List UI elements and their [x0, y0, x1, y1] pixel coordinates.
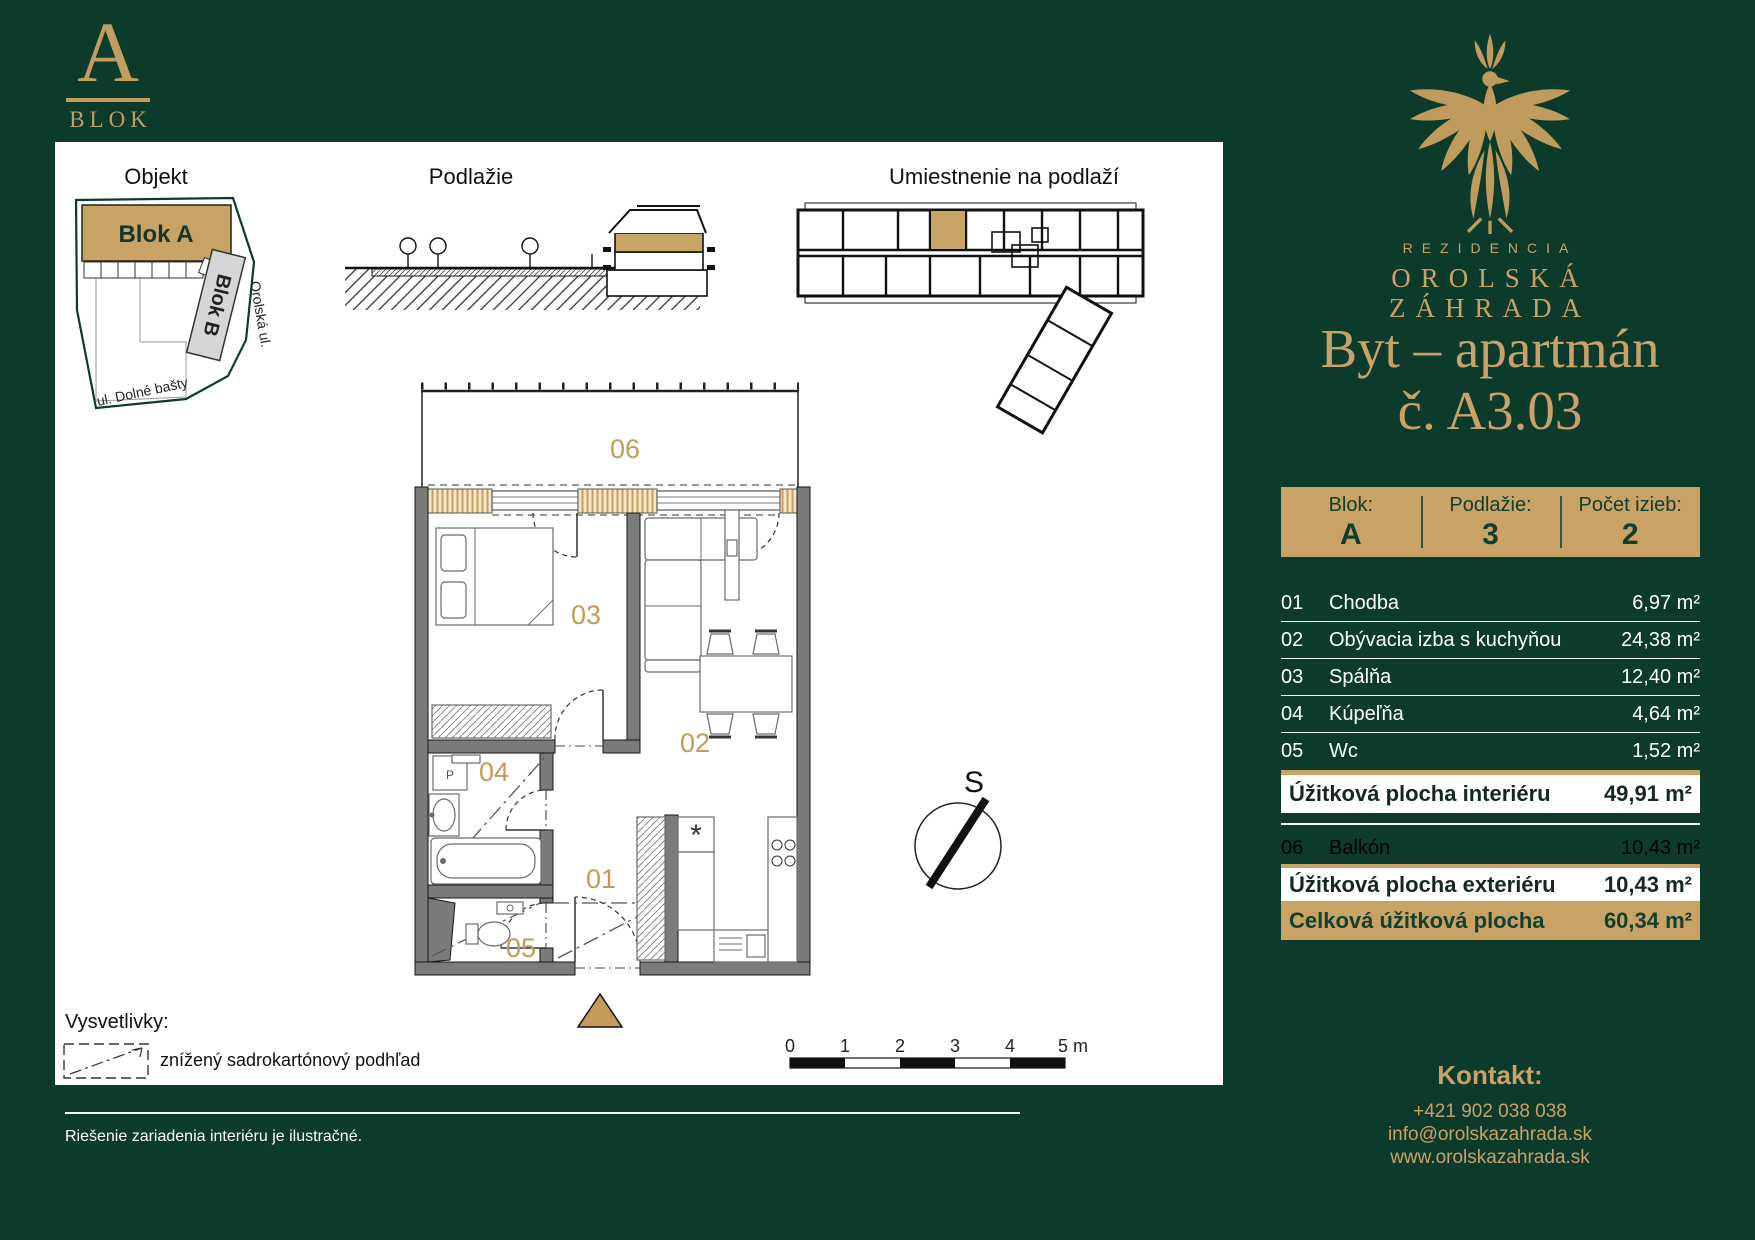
info-value: A — [1281, 518, 1421, 552]
objekt-title: Objekt — [124, 164, 188, 189]
room-num: 02 — [1281, 629, 1329, 652]
logo-letter: A — [60, 6, 156, 98]
contact-web: www.orolskazahrada.sk — [1290, 1146, 1690, 1169]
plan-panel: Objekt Podlažie Umiestnenie na podlaží B… — [55, 142, 1223, 1085]
room-num: 05 — [1281, 740, 1329, 763]
exterior-total-value: 10,43 m² — [1604, 872, 1692, 898]
contact-block: Kontakt: +421 902 038 038 info@orolskaza… — [1290, 1060, 1690, 1169]
scale-tick: 0 — [785, 1036, 795, 1056]
scale-tick: 1 — [840, 1036, 850, 1056]
room-name: Wc — [1329, 740, 1632, 763]
shaft — [428, 898, 455, 962]
info-value: 3 — [1421, 518, 1561, 552]
window-living — [657, 491, 780, 510]
room-label-bedroom: 03 — [571, 600, 601, 630]
scale-tick: 5 m — [1058, 1036, 1088, 1056]
exterior-total-label: Úžitková plocha exteriéru — [1289, 872, 1556, 898]
promenade-deck — [372, 269, 624, 276]
toilet-tank — [466, 924, 478, 944]
room-label-balcony: 06 — [610, 434, 640, 464]
room-num: 04 — [1281, 703, 1329, 726]
logo-text: BLOK — [60, 107, 156, 133]
room-row: 05 Wc 1,52 m² — [1281, 733, 1700, 770]
room-name: Obývacia izba s kuchyňou — [1329, 629, 1621, 652]
room-row: 04 Kúpeľňa 4,64 m² — [1281, 696, 1700, 733]
window-bedroom — [492, 491, 578, 510]
apartment-title-line1: Byt – apartmán — [1250, 318, 1730, 380]
apartment-title: Byt – apartmán č. A3.03 — [1250, 318, 1730, 442]
brand-line-orolska: OROLSKÁ — [1330, 263, 1650, 293]
wc-basin — [497, 902, 523, 914]
washer-label: P — [446, 768, 454, 782]
grand-total-bar: Celková úžitková plocha 60,34 m² — [1281, 901, 1700, 940]
room-label-bathroom: 04 — [479, 757, 509, 787]
room-area: 12,40 m² — [1621, 666, 1700, 689]
legend-heading: Vysvetlivky: — [65, 1011, 169, 1033]
room-name: Balkón — [1329, 837, 1621, 860]
contact-phone: +421 902 038 038 — [1290, 1100, 1690, 1123]
phoenix-logo-icon — [1375, 14, 1605, 234]
room-name: Spálňa — [1329, 666, 1621, 689]
room-num: 03 — [1281, 666, 1329, 689]
umiestnenie-title: Umiestnenie na podlaží — [889, 164, 1119, 189]
scale-tick: 4 — [1005, 1036, 1015, 1056]
page: A BLOK Objekt Podlažie Umiestnenie na po… — [0, 0, 1755, 1240]
info-label: Podlažie: — [1421, 494, 1561, 517]
room-label-wc: 05 — [506, 933, 536, 963]
room-area: 10,43 m² — [1621, 837, 1700, 860]
info-cell-podlazie: Podlažie: 3 — [1421, 487, 1561, 557]
apartment-title-line2: č. A3.03 — [1250, 380, 1730, 442]
room-num: 01 — [1281, 592, 1329, 615]
window-sill — [780, 489, 797, 513]
brand-line-rezidencia: REZIDENCIA — [1330, 240, 1650, 256]
room-name: Chodba — [1329, 592, 1632, 615]
contact-heading: Kontakt: — [1290, 1060, 1690, 1091]
scale-tick: 3 — [950, 1036, 960, 1056]
room-list: 01 Chodba 6,97 m² 02 Obývacia izba s kuc… — [1281, 585, 1700, 770]
info-label: Počet izieb: — [1560, 494, 1700, 517]
info-bar: Blok: A Podlažie: 3 Počet izieb: 2 — [1281, 487, 1700, 557]
wardrobe-bedroom — [432, 705, 551, 738]
window-sill — [428, 489, 492, 513]
room-label-living: 02 — [680, 728, 710, 758]
interior-total-value: 49,91 m² — [1604, 781, 1692, 807]
blok-a-label: Blok A — [118, 221, 193, 248]
scale-tick: 2 — [895, 1036, 905, 1056]
balcony-row: 06 Balkón 10,43 m² — [1281, 830, 1700, 867]
room-area: 24,38 m² — [1621, 629, 1700, 652]
divider — [1281, 823, 1700, 825]
room-row: 02 Obývacia izba s kuchyňou 24,38 m² — [1281, 622, 1700, 659]
room-num: 06 — [1281, 837, 1329, 860]
bed — [436, 528, 553, 625]
window-sill — [578, 489, 657, 513]
info-label: Blok: — [1281, 494, 1421, 517]
footnote: Riešenie zariadenia interiéru je ilustra… — [65, 1128, 362, 1146]
room-row: 03 Spálňa 12,40 m² — [1281, 659, 1700, 696]
boiler-symbol: * — [690, 819, 702, 852]
room-area: 4,64 m² — [1632, 703, 1700, 726]
tv-unit — [725, 510, 739, 600]
info-cell-blok: Blok: A — [1281, 487, 1421, 557]
interior-total-bar: Úžitková plocha interiéru 49,91 m² — [1281, 770, 1700, 813]
room-row: 01 Chodba 6,97 m² — [1281, 585, 1700, 622]
grand-total-label: Celková úžitková plocha — [1289, 908, 1545, 934]
highlighted-unit — [930, 210, 966, 250]
legend-item-label: znížený sadrokartónový podhľad — [160, 1050, 420, 1070]
highlighted-floor — [615, 233, 703, 252]
brand-block: REZIDENCIA OROLSKÁ ZÁHRADA — [1330, 240, 1650, 323]
room-label-hallway: 01 — [586, 864, 616, 894]
room-area: 6,97 m² — [1632, 592, 1700, 615]
contact-email: info@orolskazahrada.sk — [1290, 1123, 1690, 1146]
info-cell-izby: Počet izieb: 2 — [1560, 487, 1700, 557]
podlazie-title: Podlažie — [429, 164, 513, 189]
exterior-total-bar: Úžitková plocha exteriéru 10,43 m² — [1281, 864, 1700, 901]
a-blok-logo: A BLOK — [60, 6, 156, 133]
bottom-divider — [65, 1112, 1020, 1114]
interior-total-label: Úžitková plocha interiéru — [1289, 781, 1551, 807]
room-name: Kúpeľňa — [1329, 703, 1632, 726]
kitchen-counter — [768, 817, 797, 962]
grand-total-value: 60,34 m² — [1604, 908, 1692, 934]
wardrobe-hallway — [637, 817, 665, 960]
compass-north-label: S — [964, 766, 984, 799]
info-value: 2 — [1560, 518, 1700, 552]
room-area: 1,52 m² — [1632, 740, 1700, 763]
